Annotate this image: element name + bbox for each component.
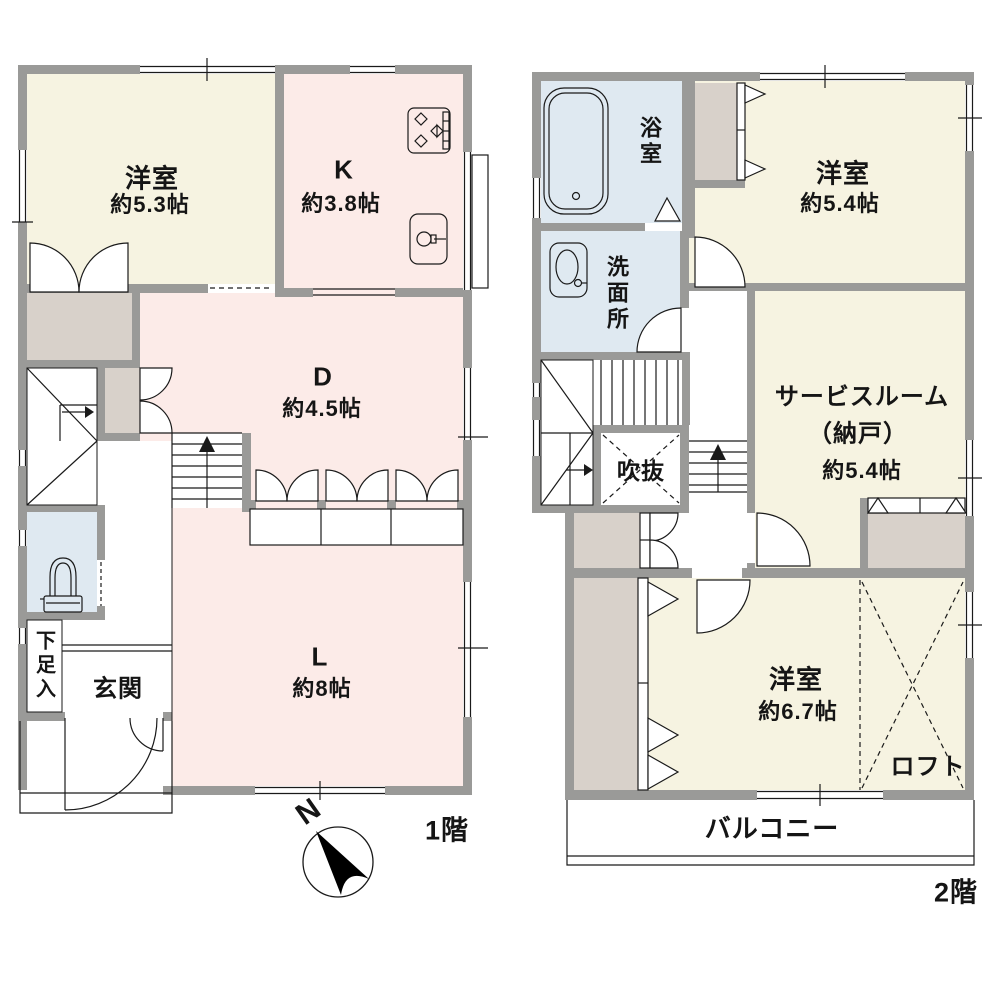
wall	[18, 712, 65, 721]
wall	[275, 288, 313, 297]
wall	[463, 65, 472, 795]
winder-stairs-2f	[541, 360, 593, 505]
wall	[163, 786, 472, 795]
wall	[532, 72, 974, 81]
wall	[682, 180, 745, 188]
wall	[18, 612, 105, 620]
floorplan-canvas: 洋室 約5.3帖 K 約3.8帖 D 約4.5帖 L 約8帖 玄関 下足入 1階…	[0, 0, 1000, 1000]
hall-landing-1f	[105, 441, 172, 508]
wall	[593, 425, 601, 513]
room-fill-kitchen	[284, 74, 463, 293]
wall	[97, 360, 105, 441]
wall	[18, 360, 140, 368]
room-size-western-2f: 約5.4帖	[800, 186, 880, 218]
wall	[682, 360, 690, 425]
wall	[242, 500, 256, 509]
stair-area-1f-straight	[172, 433, 242, 508]
wall	[532, 352, 690, 360]
compass-north-letter: N	[290, 792, 328, 833]
stairs-up-arrow-icon	[710, 444, 726, 460]
closet-fill-2f-mid	[573, 513, 640, 570]
compass-north-icon	[303, 827, 373, 897]
wall	[565, 513, 574, 800]
wall	[965, 72, 974, 800]
wall	[682, 72, 695, 238]
room-size-living: 約8帖	[292, 671, 351, 703]
wall	[97, 512, 105, 560]
wall	[593, 425, 688, 433]
wall	[742, 568, 974, 578]
closet-fill-1f-b	[105, 368, 140, 433]
closet-fill-service	[868, 513, 965, 568]
wall	[275, 65, 284, 293]
room-size-dining: 約4.5帖	[282, 391, 362, 423]
wall	[532, 72, 541, 513]
wall	[387, 500, 396, 509]
wall	[18, 65, 472, 74]
wall	[565, 568, 692, 578]
floor1-label: 1階	[425, 809, 469, 848]
wall	[565, 790, 974, 800]
wall	[457, 500, 463, 509]
wall	[97, 433, 140, 441]
room-label-shoe-storage: 下足入	[30, 630, 59, 702]
closet-fill-2f-bottom	[574, 578, 638, 790]
room-label-entrance: 玄関	[93, 669, 143, 704]
room-label-washroom: 洗面所	[600, 255, 632, 333]
wall	[680, 425, 689, 513]
wall	[532, 505, 688, 513]
straight-stairs-2f	[601, 360, 678, 425]
closet-fill-1f-a	[27, 293, 132, 360]
wall	[395, 288, 472, 297]
room-label-service: サービスルーム	[775, 377, 949, 412]
wall	[747, 291, 755, 513]
room-label-service-paren: （納戸）	[808, 414, 908, 449]
room-label-loft: ロフト	[891, 747, 966, 782]
floor2-label: 2階	[934, 871, 978, 910]
corridor-1f	[103, 508, 172, 786]
room-label-balcony: バルコニー	[705, 809, 839, 846]
wall	[132, 293, 140, 368]
room-label-living: L	[312, 642, 329, 673]
wall	[163, 712, 172, 721]
wall	[860, 498, 868, 568]
side-stairs-2f	[689, 441, 747, 492]
room-label-western-2f: 洋室	[816, 154, 870, 191]
wall	[680, 231, 689, 308]
wall	[18, 505, 105, 512]
door-swing-icon	[640, 513, 678, 568]
room-label-kitchen: K	[334, 155, 354, 186]
stair-area-1f-winder	[27, 368, 97, 505]
room-size-kitchen: 約3.8帖	[301, 186, 381, 218]
stairs-right-arrow-icon	[584, 464, 593, 476]
closet-fill-2f-top	[695, 83, 737, 180]
wall	[317, 500, 326, 509]
room-label-dining: D	[313, 362, 333, 393]
wall	[532, 223, 645, 231]
wall	[688, 283, 974, 291]
room-fill-toilet	[27, 512, 97, 612]
room-label-void: 吹抜	[617, 452, 665, 486]
wall	[18, 284, 208, 293]
room-label-bathroom: 浴室	[633, 116, 665, 168]
room-size-western2-2f: 約6.7帖	[758, 694, 838, 726]
room-label-western2-2f: 洋室	[769, 660, 823, 697]
room-size-western-1f: 約5.3帖	[110, 187, 190, 219]
wall	[97, 606, 105, 620]
room-size-service: 約5.4帖	[822, 453, 902, 485]
wall	[18, 65, 27, 790]
